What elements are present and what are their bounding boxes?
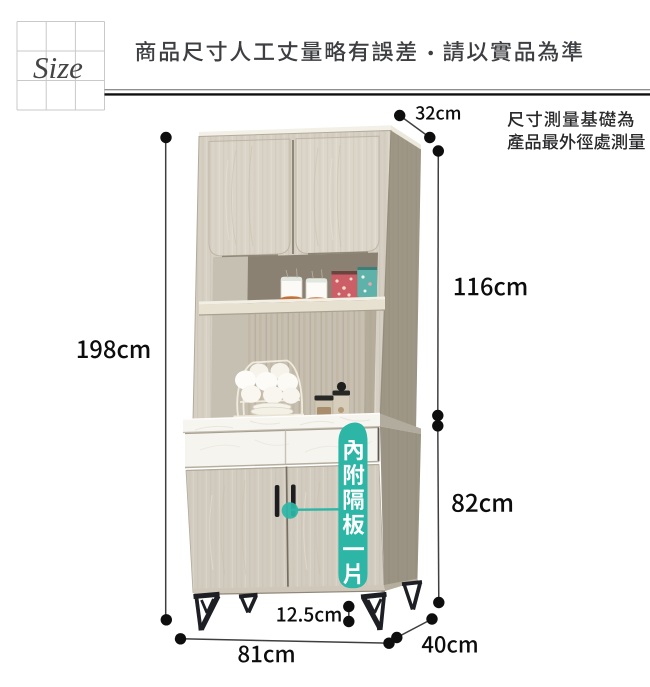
svg-text:Size: Size [33, 50, 83, 85]
